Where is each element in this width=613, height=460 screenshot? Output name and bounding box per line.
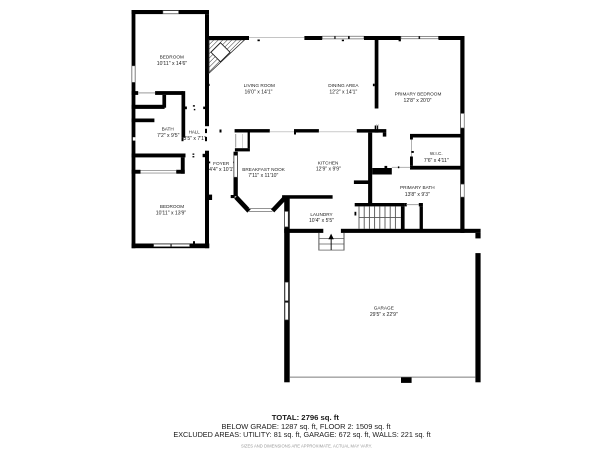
svg-text:DINING AREA: DINING AREA xyxy=(328,83,359,88)
svg-text:10'11" x 14'6": 10'11" x 14'6" xyxy=(157,61,188,67)
svg-text:BREAKFAST NOOK: BREAKFAST NOOK xyxy=(242,167,286,172)
svg-text:BEDROOM: BEDROOM xyxy=(160,54,184,59)
svg-text:LIVING ROOM: LIVING ROOM xyxy=(244,83,275,88)
svg-text:W.I.C.: W.I.C. xyxy=(430,151,443,156)
svg-text:7'11" x 11'10": 7'11" x 11'10" xyxy=(248,173,278,179)
svg-text:29'5" x 22'9": 29'5" x 22'9" xyxy=(370,312,398,318)
svg-text:16'0" x 14'1": 16'0" x 14'1" xyxy=(245,89,273,95)
svg-text:BATH: BATH xyxy=(162,126,174,131)
svg-text:13'8" x 9'3": 13'8" x 9'3" xyxy=(405,192,430,198)
svg-text:10'11" x 13'9": 10'11" x 13'9" xyxy=(156,211,187,217)
svg-text:HALL: HALL xyxy=(189,130,201,135)
svg-text:PRIMARY BEDROOM: PRIMARY BEDROOM xyxy=(395,91,442,96)
svg-text:12'9" x 9'9": 12'9" x 9'9" xyxy=(316,167,341,173)
svg-text:FOYER: FOYER xyxy=(213,161,230,166)
svg-text:7'2" x 9'5": 7'2" x 9'5" xyxy=(157,133,179,139)
svg-text:KITCHEN: KITCHEN xyxy=(318,160,339,165)
svg-text:3'5" x 7'1": 3'5" x 7'1" xyxy=(184,136,206,142)
svg-text:12'8" x 20'0": 12'8" x 20'0" xyxy=(404,98,432,104)
svg-text:SIZES AND DIMENSIONS ARE APPRO: SIZES AND DIMENSIONS ARE APPROXIMATE. AC… xyxy=(241,443,372,448)
svg-text:PRIMARY BATH: PRIMARY BATH xyxy=(400,185,435,190)
svg-text:BEDROOM: BEDROOM xyxy=(160,204,184,209)
svg-text:10'4" x 5'5": 10'4" x 5'5" xyxy=(309,218,334,224)
svg-text:GARAGE: GARAGE xyxy=(374,306,394,311)
svg-text:7'6" x 4'11": 7'6" x 4'11" xyxy=(424,158,449,164)
svg-text:LAUNDRY: LAUNDRY xyxy=(310,212,333,217)
svg-text:EXCLUDED AREAS: UTILITY: 81 sq: EXCLUDED AREAS: UTILITY: 81 sq. ft, GARA… xyxy=(173,430,430,439)
svg-text:TOTAL: 2796 sq. ft: TOTAL: 2796 sq. ft xyxy=(272,413,340,422)
svg-text:12'2" x 14'1": 12'2" x 14'1" xyxy=(329,89,357,95)
svg-text:4'4" x 10'1": 4'4" x 10'1" xyxy=(209,167,234,173)
